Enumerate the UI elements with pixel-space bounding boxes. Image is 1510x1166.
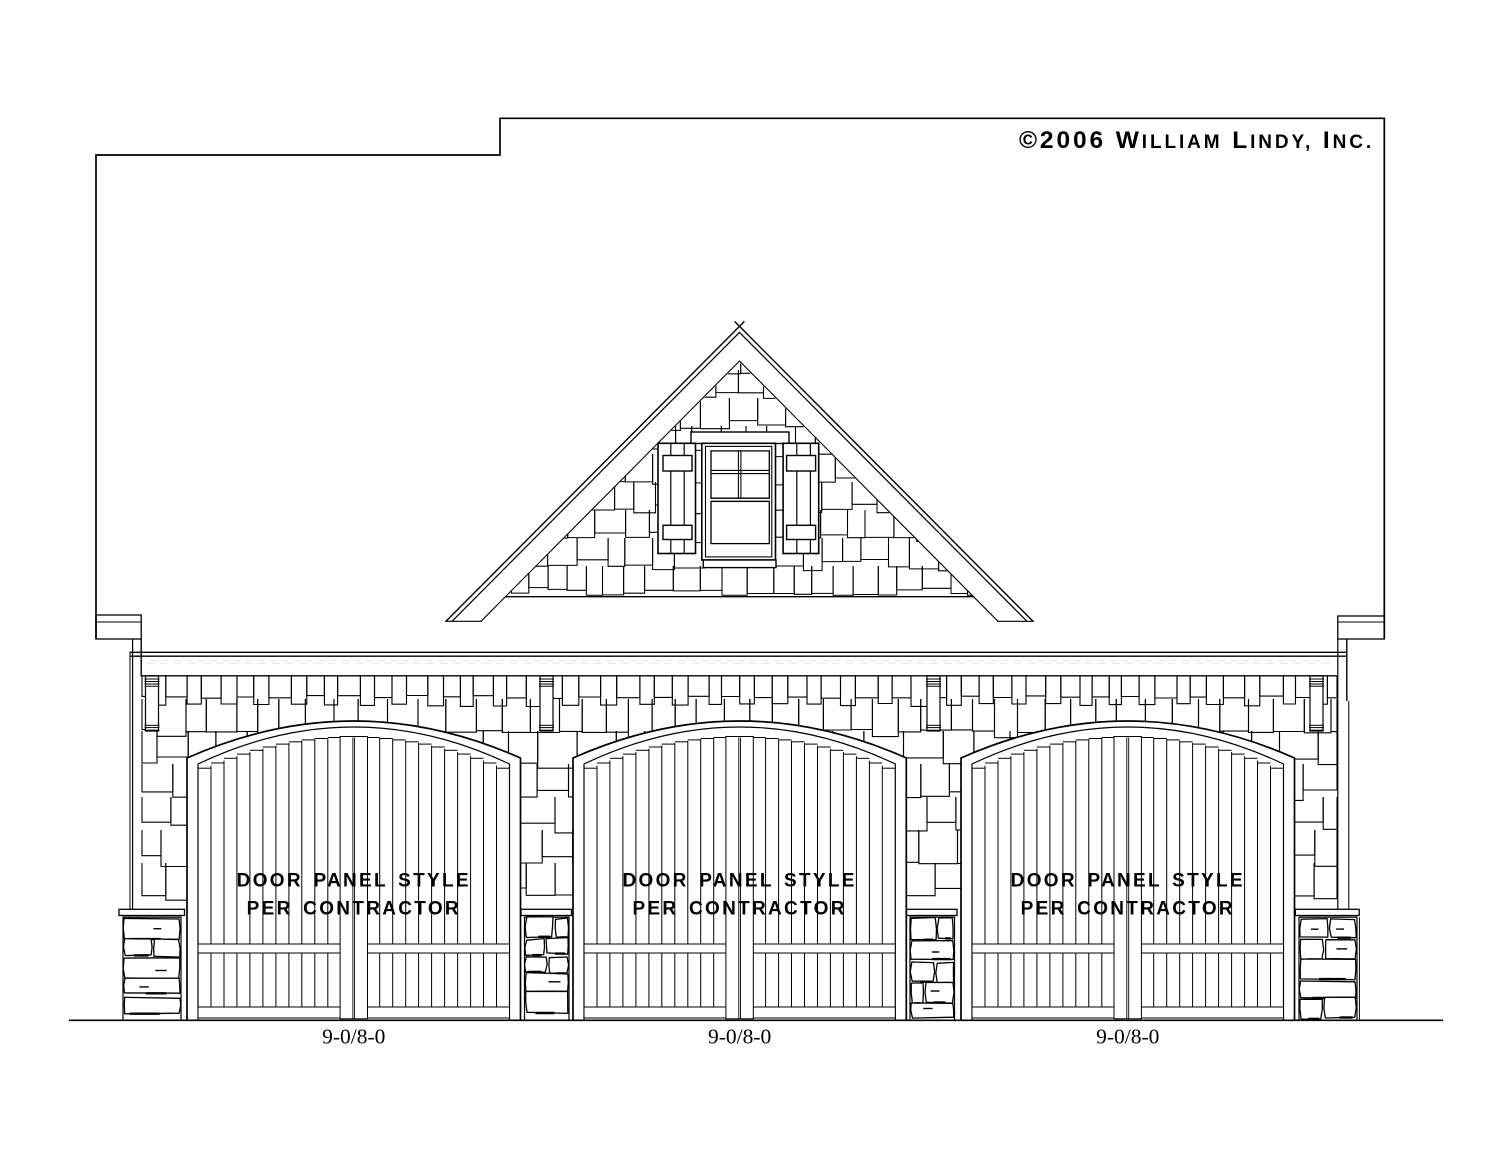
svg-text:DOOR PANEL STYLE: DOOR PANEL STYLE (237, 871, 471, 892)
svg-text:9-0/8-0: 9-0/8-0 (322, 1025, 385, 1049)
svg-text:DOOR PANEL STYLE: DOOR PANEL STYLE (1011, 871, 1245, 892)
svg-text:PER CONTRACTOR: PER CONTRACTOR (1021, 899, 1235, 920)
svg-text:9-0/8-0: 9-0/8-0 (1096, 1025, 1159, 1049)
svg-text:DOOR PANEL STYLE: DOOR PANEL STYLE (622, 871, 856, 892)
svg-text:9-0/8-0: 9-0/8-0 (708, 1025, 771, 1049)
svg-text:PER CONTRACTOR: PER CONTRACTOR (632, 899, 846, 920)
svg-text:PER CONTRACTOR: PER CONTRACTOR (247, 899, 461, 920)
svg-text:©2006 WILLIAM LINDY, INC.: ©2006 WILLIAM LINDY, INC. (1019, 127, 1374, 154)
